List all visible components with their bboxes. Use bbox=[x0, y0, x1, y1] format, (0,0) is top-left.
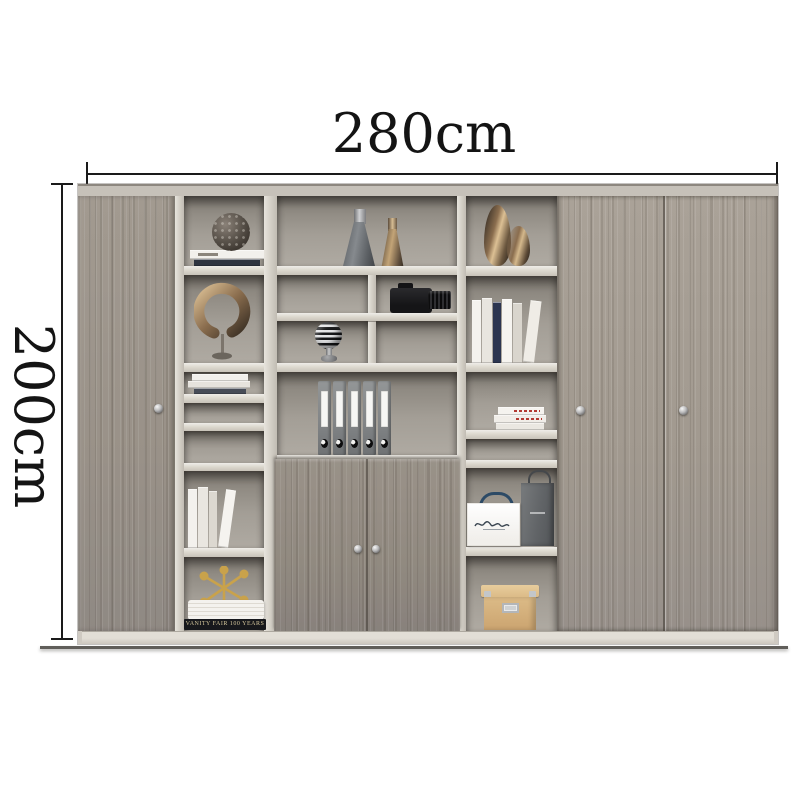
width-dimension-line bbox=[86, 173, 778, 175]
center-cabinet-knob-right bbox=[372, 545, 380, 553]
flat-book-red-label bbox=[494, 415, 546, 423]
lattice-sphere-texture bbox=[212, 213, 250, 251]
shelf bbox=[184, 394, 264, 403]
bronze-teardrop-vase-short bbox=[507, 226, 530, 266]
cubby bbox=[184, 403, 264, 423]
standing-book bbox=[482, 298, 492, 363]
striped-sphere-finial bbox=[315, 322, 342, 349]
shelf bbox=[184, 363, 264, 372]
standing-book bbox=[513, 303, 522, 363]
flat-book bbox=[496, 423, 544, 430]
furniture-product-image: 280cm 200cm bbox=[0, 0, 800, 800]
height-dimension-label: 200cm bbox=[6, 306, 60, 526]
box-label-holder bbox=[502, 603, 519, 613]
standing-book bbox=[209, 491, 217, 548]
shelf bbox=[184, 266, 264, 275]
ring-binder bbox=[333, 381, 346, 455]
camera-body bbox=[390, 288, 432, 313]
shelf bbox=[184, 463, 264, 471]
ring-binder bbox=[318, 381, 331, 455]
cabinet-top-panel bbox=[78, 184, 778, 196]
standing-book bbox=[502, 299, 512, 363]
shelf bbox=[466, 460, 557, 468]
right-door-seam bbox=[663, 196, 665, 631]
shelf bbox=[466, 266, 557, 276]
bronze-ring-sculpture bbox=[194, 276, 252, 362]
cubby bbox=[376, 321, 457, 363]
ring-binder bbox=[378, 381, 391, 455]
grey-cone-vase-neck bbox=[354, 209, 366, 224]
white-page-stack bbox=[188, 600, 264, 620]
vanity-fair-book: VANITY FAIR 100 YEARS bbox=[184, 619, 266, 630]
storage-box-body bbox=[484, 597, 536, 630]
standing-book bbox=[188, 489, 197, 548]
left-door-knob bbox=[154, 404, 163, 413]
camera-lens bbox=[428, 291, 451, 309]
flat-book bbox=[188, 381, 250, 388]
shelf bbox=[184, 548, 264, 557]
plinth bbox=[82, 631, 774, 644]
left-sliding-wood-door bbox=[78, 196, 175, 631]
height-dim-tick-top bbox=[51, 183, 73, 185]
ring-binder bbox=[348, 381, 361, 455]
cabinet bbox=[78, 184, 778, 644]
dark-book bbox=[194, 259, 260, 266]
right-sliding-wood-doors bbox=[557, 196, 778, 631]
right-door-knob-2 bbox=[679, 406, 688, 415]
shelf bbox=[277, 313, 457, 321]
height-dimension-line bbox=[61, 184, 63, 640]
width-dim-tick-right bbox=[776, 162, 778, 186]
book-spine-label bbox=[198, 253, 218, 256]
flat-book bbox=[192, 374, 248, 381]
shelf bbox=[466, 430, 557, 439]
width-dim-tick-left bbox=[86, 162, 88, 186]
white-bag-script-logo bbox=[473, 518, 515, 532]
cubby bbox=[184, 431, 264, 463]
flat-book bbox=[194, 388, 246, 394]
cubby bbox=[466, 439, 557, 460]
standing-book bbox=[493, 302, 501, 363]
shelf bbox=[466, 547, 557, 556]
vanity-fair-book-spine-text: VANITY FAIR 100 YEARS bbox=[184, 619, 266, 630]
shelf bbox=[277, 363, 457, 372]
ring-binder bbox=[363, 381, 376, 455]
shelf bbox=[277, 266, 457, 275]
width-dimension-label: 280cm bbox=[314, 107, 534, 161]
right-door-knob-1 bbox=[576, 406, 585, 415]
standing-book bbox=[198, 487, 208, 548]
shelf bbox=[466, 363, 557, 372]
cubby bbox=[277, 275, 368, 313]
finial-base bbox=[321, 355, 337, 362]
height-dim-tick-bottom bbox=[51, 638, 73, 640]
shelf bbox=[184, 423, 264, 431]
flat-book-red-label bbox=[498, 407, 544, 415]
standing-book bbox=[472, 300, 481, 363]
center-cabinet-seam bbox=[366, 459, 368, 631]
floor-shadow bbox=[40, 646, 788, 649]
grey-shopping-bag bbox=[521, 483, 554, 546]
grey-bag-logo bbox=[530, 512, 545, 514]
center-cabinet-knob-left bbox=[354, 545, 362, 553]
frame-divider bbox=[175, 196, 184, 631]
